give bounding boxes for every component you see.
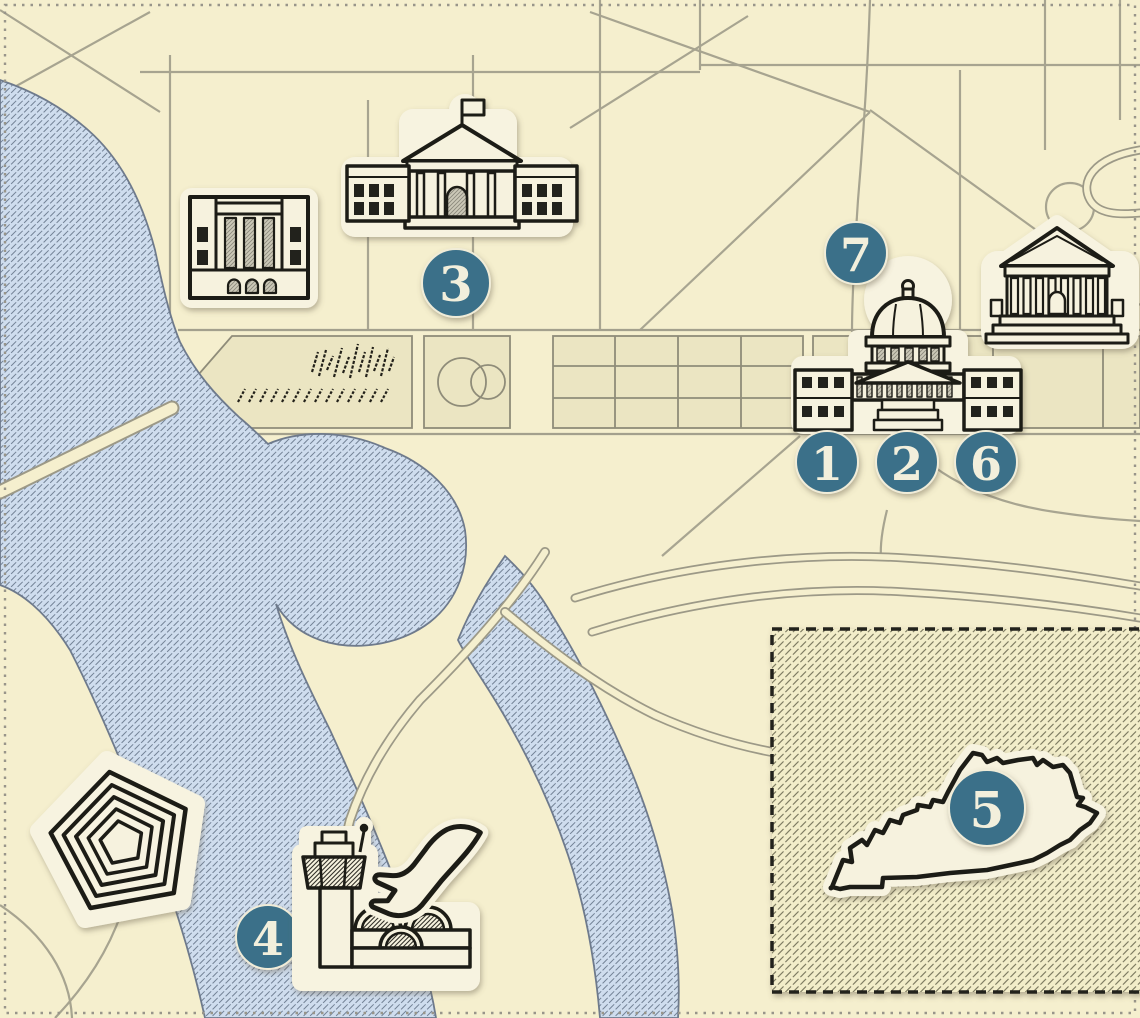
- marker-5[interactable]: 5: [949, 770, 1025, 846]
- fountain-panel: [424, 336, 510, 428]
- terminal-base: [352, 948, 470, 967]
- entrance-door: [447, 187, 467, 217]
- marker-2-label: 2: [891, 437, 923, 491]
- right-side-block: [1112, 300, 1123, 316]
- antenna-beacon: [361, 825, 368, 832]
- dc-landmark-map: 4: [0, 0, 1140, 1018]
- facade-columns: [225, 218, 274, 268]
- marker-1[interactable]: 1: [796, 431, 858, 493]
- court-door: [1049, 292, 1065, 314]
- left-side-block: [991, 300, 1002, 316]
- marker-4[interactable]: 4: [236, 905, 300, 969]
- marker-3-label: 3: [439, 257, 472, 313]
- government-building-icon[interactable]: [180, 188, 318, 308]
- marker-6[interactable]: 6: [955, 431, 1017, 493]
- marker-2[interactable]: 2: [876, 431, 938, 493]
- flag: [462, 100, 484, 115]
- marker-7[interactable]: 7: [825, 222, 887, 284]
- marker-6-label: 6: [970, 437, 1002, 491]
- tower-shaft: [320, 888, 352, 967]
- marker-7-label: 7: [840, 228, 872, 282]
- control-cab: [303, 857, 365, 888]
- marker-4-label: 4: [252, 912, 284, 966]
- court-steps: [986, 316, 1128, 343]
- marker-5-label: 5: [970, 781, 1005, 840]
- tower-roof-box: [322, 832, 346, 843]
- marker-3[interactable]: 3: [422, 249, 490, 317]
- kentucky-west-tip-dot: [829, 886, 834, 891]
- center-steps: [874, 400, 942, 430]
- marker-1-label: 1: [811, 437, 843, 491]
- portico-base: [405, 217, 519, 228]
- entry-arches: [228, 280, 276, 294]
- map-canvas: 4: [0, 0, 1140, 1018]
- tower-upper-cab: [315, 843, 353, 857]
- attic-band: [216, 203, 282, 214]
